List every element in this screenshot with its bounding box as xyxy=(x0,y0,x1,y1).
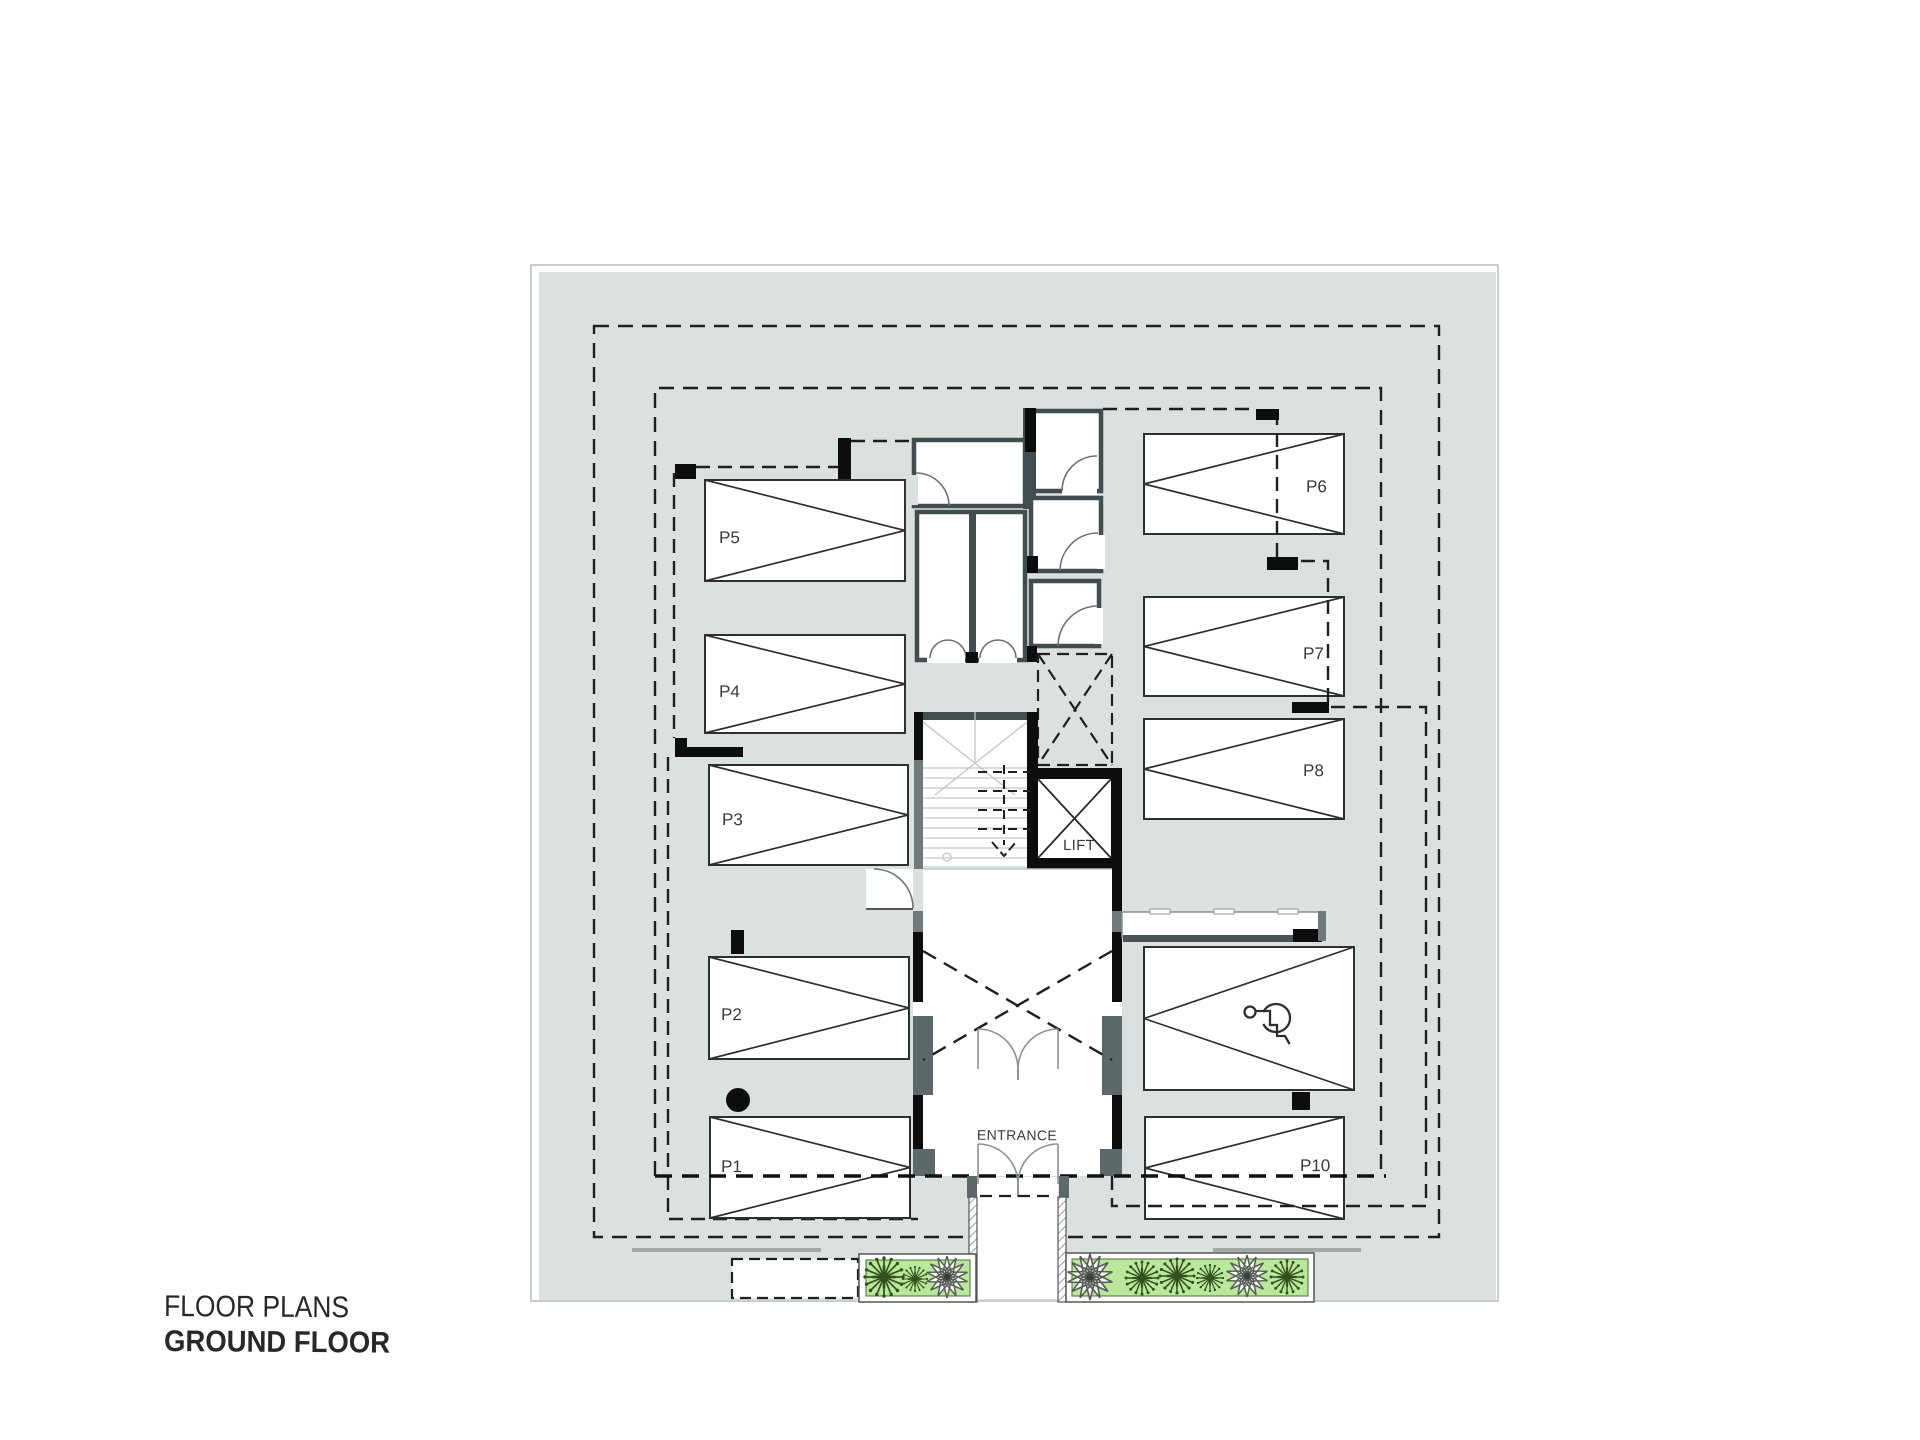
svg-text:P5: P5 xyxy=(719,528,740,547)
svg-text:GROUND FLOOR: GROUND FLOOR xyxy=(164,1325,391,1360)
svg-text:P2: P2 xyxy=(721,1005,742,1024)
svg-text:P6: P6 xyxy=(1306,477,1327,496)
svg-text:P8: P8 xyxy=(1303,761,1324,780)
svg-text:ENTRANCE: ENTRANCE xyxy=(977,1127,1057,1144)
svg-text:P3: P3 xyxy=(722,810,743,829)
svg-text:P1: P1 xyxy=(721,1157,742,1176)
svg-text:P10: P10 xyxy=(1300,1156,1330,1175)
svg-text:P7: P7 xyxy=(1303,644,1324,663)
svg-text:LIFT: LIFT xyxy=(1063,837,1095,854)
svg-text:P4: P4 xyxy=(719,682,740,701)
svg-text:FLOOR PLANS: FLOOR PLANS xyxy=(164,1290,349,1324)
